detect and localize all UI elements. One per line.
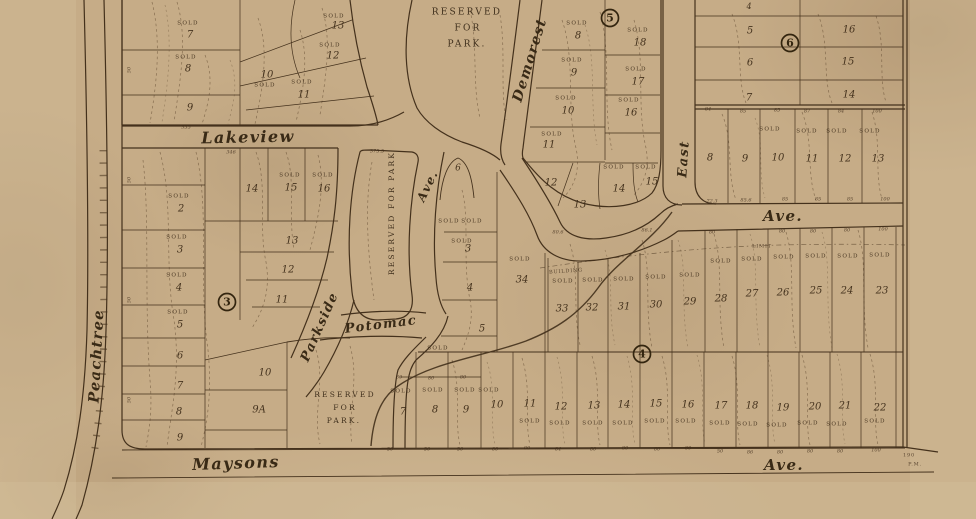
sold-label: SOLD bbox=[427, 346, 448, 352]
lot-number: 14 bbox=[618, 400, 631, 411]
park-label: RESERVED FOR PARK bbox=[387, 151, 396, 275]
lot-number: 16 bbox=[682, 400, 695, 411]
lot-number: 3 bbox=[465, 244, 471, 255]
lot-number: 10 bbox=[491, 400, 504, 411]
dim-label: 50 bbox=[424, 447, 431, 453]
sold-label: SOLD bbox=[864, 419, 885, 425]
lot-number: 8 bbox=[432, 405, 438, 416]
park-label: RESERVED bbox=[432, 8, 502, 18]
sold-label: SOLD bbox=[555, 96, 576, 102]
block-badge-number: 6 bbox=[786, 37, 794, 50]
sold-label: SOLD bbox=[618, 98, 639, 104]
note-label: 190 bbox=[903, 453, 915, 459]
lot-number: 2 bbox=[177, 204, 184, 215]
lot-number: 4 bbox=[745, 2, 751, 11]
street-label: East bbox=[675, 140, 693, 179]
lot-number: 21 bbox=[838, 401, 852, 412]
lot-number: 4 bbox=[175, 283, 182, 294]
dim-label: 80 bbox=[590, 447, 597, 453]
lot-number: 11 bbox=[276, 295, 289, 306]
note-label: P.M. bbox=[908, 462, 922, 468]
sold-label: SOLD bbox=[635, 165, 656, 171]
dim-label: 80 bbox=[777, 450, 784, 456]
sold-label: SOLD bbox=[509, 257, 530, 263]
dim-label: 86 bbox=[747, 450, 754, 456]
lot-number: 34 bbox=[516, 275, 529, 286]
dim-label: 355 bbox=[181, 125, 191, 131]
sold-label: SOLD bbox=[167, 310, 188, 316]
sold-label: SOLD bbox=[478, 388, 499, 394]
block-badge-number: 5 bbox=[606, 12, 614, 25]
plat-map: LakeviewPeachtreeDemorestEastAve.Ave.Pot… bbox=[0, 0, 976, 519]
sold-label: SOLD bbox=[766, 423, 787, 429]
right-margin bbox=[910, 0, 976, 519]
lot-number: 13 bbox=[872, 154, 885, 165]
lot-number: 12 bbox=[282, 265, 295, 276]
dim-label: 85 bbox=[774, 108, 780, 114]
block-left-lots bbox=[122, 185, 205, 420]
sold-label: SOLD bbox=[625, 67, 646, 73]
sold-label: SOLD bbox=[679, 273, 700, 279]
dim-label: 50 bbox=[387, 447, 394, 453]
lot-number: 3 bbox=[177, 245, 183, 256]
sold-label: SOLD bbox=[166, 273, 187, 279]
street-label: Ave. bbox=[761, 207, 803, 225]
dim-label: 375.5 bbox=[370, 149, 384, 155]
lot-number: 11 bbox=[806, 154, 819, 165]
park-label: PARK. bbox=[327, 416, 361, 425]
sold-label: SOLD bbox=[168, 194, 189, 200]
street-label: Ave. bbox=[762, 456, 804, 474]
sold-label: SOLD bbox=[613, 277, 634, 283]
dim-label: 80 bbox=[779, 229, 786, 235]
dim-label: 80 bbox=[622, 446, 629, 452]
sold-label: SOLD bbox=[645, 275, 666, 281]
lot-number: 7 bbox=[187, 30, 194, 41]
lot-number: 5 bbox=[747, 26, 753, 37]
park-label: RESERVED bbox=[314, 390, 376, 399]
lot-number: 33 bbox=[556, 304, 569, 315]
lot-number: 20 bbox=[808, 402, 822, 413]
sold-label: SOLD bbox=[319, 43, 340, 49]
lot-number: 29 bbox=[683, 297, 697, 308]
left-margin bbox=[0, 0, 76, 519]
lot-number: 6 bbox=[747, 58, 754, 69]
road-tick-marks bbox=[94, 150, 104, 455]
dim-label: 100 bbox=[880, 197, 890, 203]
dim-label: 50 bbox=[127, 296, 133, 303]
sold-label: SOLD bbox=[566, 21, 587, 27]
sold-label: SOLD bbox=[759, 127, 780, 133]
lot-number: 15 bbox=[285, 183, 298, 194]
lot-number: 16 bbox=[318, 184, 331, 195]
plat-map-drawing: LakeviewPeachtreeDemorestEastAve.Ave.Pot… bbox=[0, 0, 976, 519]
lot-number: 31 bbox=[618, 302, 631, 313]
bottom-margin bbox=[0, 482, 976, 519]
sold-label: SOLD bbox=[675, 419, 696, 425]
sold-label: SOLD bbox=[519, 419, 540, 425]
block-badge-number: 3 bbox=[223, 296, 231, 309]
dim-label: 80 bbox=[685, 446, 692, 452]
lot-number: 17 bbox=[715, 401, 728, 412]
lot-number: 8 bbox=[707, 153, 713, 164]
block-badge-number: 4 bbox=[638, 348, 646, 361]
lot-number: 11 bbox=[298, 90, 311, 101]
lot-number: 10 bbox=[259, 368, 272, 379]
sold-label: SOLD bbox=[826, 129, 847, 135]
lot-number: 15 bbox=[842, 57, 855, 68]
lot-number: 8 bbox=[575, 31, 581, 42]
lot-number: 18 bbox=[746, 401, 759, 412]
lot-number: 10 bbox=[261, 70, 274, 81]
lot-number: 9 bbox=[463, 405, 470, 416]
dim-label: 50 bbox=[127, 176, 133, 183]
street-label: Peachtree bbox=[86, 309, 108, 405]
lot-number: 13 bbox=[332, 21, 345, 32]
sold-label: SOLD bbox=[177, 21, 198, 27]
dim-label: 100 bbox=[872, 109, 882, 115]
lot-number: 17 bbox=[632, 77, 645, 88]
sold-label: SOLD bbox=[773, 255, 794, 261]
road-scurve-edges bbox=[500, 158, 678, 261]
dim-label: 87 bbox=[804, 109, 811, 115]
lot-number: 22 bbox=[873, 403, 887, 414]
park-label: FOR bbox=[455, 24, 482, 34]
sold-label: SOLD bbox=[709, 421, 730, 427]
lot-number: 24 bbox=[840, 286, 854, 297]
dim-label: 85 bbox=[782, 197, 788, 203]
dim-label: 80 bbox=[807, 449, 814, 455]
lot-number: 12 bbox=[545, 178, 558, 189]
dim-label: 346 bbox=[226, 150, 236, 156]
lot-number: 9 bbox=[571, 68, 578, 79]
dim-label: 80 bbox=[844, 228, 851, 234]
lot-number: 14 bbox=[843, 90, 856, 101]
lot-number: 15 bbox=[646, 177, 659, 188]
sold-label: SOLD bbox=[869, 253, 890, 259]
sold-label: SOLD bbox=[279, 173, 300, 179]
sold-label: SOLD bbox=[737, 422, 758, 428]
block-potomac-south-lots bbox=[205, 342, 287, 448]
sold-label: SOLD bbox=[254, 83, 275, 89]
sold-label: SOLD bbox=[826, 422, 847, 428]
block-6-lots bbox=[695, 0, 903, 105]
lot-number: 4 bbox=[466, 283, 473, 294]
lot-number: 12 bbox=[555, 402, 568, 413]
lot-number: 5 bbox=[177, 320, 183, 331]
sold-label: SOLD bbox=[541, 132, 562, 138]
lot-number: 13 bbox=[588, 401, 601, 412]
sold-label: SOLD bbox=[438, 219, 459, 225]
lot-number: 23 bbox=[875, 286, 889, 297]
lot-number: 9 bbox=[187, 103, 194, 114]
dim-label: 80 bbox=[492, 447, 499, 453]
dim-label: 80.6 bbox=[552, 230, 564, 236]
lot-number: 18 bbox=[634, 38, 647, 49]
sold-label: SOLD bbox=[390, 389, 411, 395]
sold-label: SOLD bbox=[710, 259, 731, 265]
lot-number: 13 bbox=[574, 200, 587, 211]
lot-number: 32 bbox=[586, 303, 599, 314]
lot-number: 26 bbox=[776, 288, 790, 299]
sold-label: SOLD bbox=[561, 58, 582, 64]
lot-number: 9 bbox=[177, 433, 184, 444]
dim-label: 72.3 bbox=[706, 199, 717, 205]
sold-label: SOLD bbox=[805, 254, 826, 260]
lot-number: 10 bbox=[772, 153, 785, 164]
lot-number: 7 bbox=[746, 93, 753, 104]
sold-label: SOLD bbox=[627, 28, 648, 34]
dim-label: 50 bbox=[127, 396, 133, 403]
sold-label: SOLD bbox=[796, 129, 817, 135]
lot-number: 28 bbox=[714, 294, 728, 305]
dim-label: 86.1 bbox=[641, 228, 652, 234]
sold-label: SOLD bbox=[323, 14, 344, 20]
dim-label: 80 bbox=[709, 230, 716, 236]
lot-number: 16 bbox=[843, 25, 856, 36]
sold-label: SOLD bbox=[552, 279, 573, 285]
park-center-outline bbox=[349, 150, 418, 320]
sold-label: SOLD bbox=[644, 419, 665, 425]
sold-label: SOLD bbox=[741, 257, 762, 263]
dim-label: 84 bbox=[705, 107, 711, 113]
lot-number: 7 bbox=[177, 381, 184, 392]
dim-label: 85 bbox=[847, 197, 853, 203]
lot-number: 12 bbox=[839, 154, 852, 165]
sold-label: SOLD bbox=[422, 388, 443, 394]
lot-number: 9A bbox=[252, 405, 266, 416]
lot-number: 9 bbox=[742, 154, 749, 165]
lot-number: 12 bbox=[327, 51, 340, 62]
paper-margins bbox=[0, 0, 976, 519]
sold-label: SOLD bbox=[461, 219, 482, 225]
sold-label: SOLD bbox=[451, 239, 472, 245]
dim-label: 85 bbox=[815, 197, 821, 203]
lot-number: 27 bbox=[745, 289, 759, 300]
dim-label: 80 bbox=[810, 229, 817, 235]
sold-label: SOLD bbox=[454, 388, 475, 394]
dim-label: 80 bbox=[460, 375, 467, 381]
sold-label: SOLD bbox=[582, 278, 603, 284]
dim-label: 50 bbox=[717, 449, 724, 455]
sold-label: SOLD bbox=[166, 235, 187, 241]
dim-label: 84 bbox=[555, 447, 561, 453]
lot-number: 11 bbox=[524, 399, 537, 410]
lot-number: 19 bbox=[777, 403, 790, 414]
lot-number: 6 bbox=[177, 351, 184, 362]
dim-label: 80 bbox=[396, 375, 403, 381]
dim-label: 50 bbox=[127, 66, 133, 73]
street-label: Maysons bbox=[191, 452, 280, 474]
sold-label: SOLD bbox=[549, 421, 570, 427]
dim-label: 100 bbox=[871, 448, 881, 454]
sold-label: SOLD bbox=[175, 55, 196, 61]
lot-number: 5 bbox=[479, 324, 485, 335]
dim-label: 80 bbox=[654, 447, 661, 453]
park-top-outline bbox=[406, 0, 500, 160]
dim-label: 80 bbox=[428, 376, 435, 382]
labels-layer: LakeviewPeachtreeDemorestEastAve.Ave.Pot… bbox=[86, 2, 922, 474]
note-label: LIMIT bbox=[752, 244, 772, 250]
lot-number: 13 bbox=[286, 236, 299, 247]
sold-label: SOLD bbox=[582, 421, 603, 427]
block-7-22-lots bbox=[400, 352, 896, 448]
lot-number: 16 bbox=[625, 108, 638, 119]
dim-label: 85.6 bbox=[740, 198, 752, 204]
lot-number: 30 bbox=[650, 300, 663, 311]
sold-label: SOLD bbox=[312, 173, 333, 179]
street-label: Potomac bbox=[343, 313, 418, 337]
lot-number: 10 bbox=[562, 106, 575, 117]
sold-label: SOLD bbox=[603, 165, 624, 171]
dim-label: 80 bbox=[524, 446, 531, 452]
sold-label: SOLD bbox=[291, 80, 312, 86]
dim-label: 85 bbox=[740, 109, 746, 115]
lot-number: 7 bbox=[400, 407, 407, 418]
lot-number: 8 bbox=[185, 64, 191, 75]
lot-number: 8 bbox=[176, 407, 182, 418]
park-label: PARK. bbox=[447, 40, 486, 50]
sold-label: SOLD bbox=[859, 129, 880, 135]
lot-number: 11 bbox=[543, 140, 556, 151]
sold-label: SOLD bbox=[797, 421, 818, 427]
lot-number: 15 bbox=[650, 399, 663, 410]
street-label: Lakeview bbox=[200, 127, 295, 148]
lot-number: 25 bbox=[809, 286, 823, 297]
dim-label: 50 bbox=[457, 447, 464, 453]
lot-number: 6 bbox=[455, 164, 461, 174]
dim-label: 80 bbox=[837, 449, 844, 455]
dim-label: 100 bbox=[878, 227, 888, 233]
park-label: FOR bbox=[333, 403, 357, 412]
lot-number: 14 bbox=[613, 184, 626, 195]
dim-label: 84 bbox=[838, 109, 844, 115]
sold-label: SOLD bbox=[612, 421, 633, 427]
lot-number: 14 bbox=[246, 184, 259, 195]
sold-label: SOLD bbox=[837, 254, 858, 260]
